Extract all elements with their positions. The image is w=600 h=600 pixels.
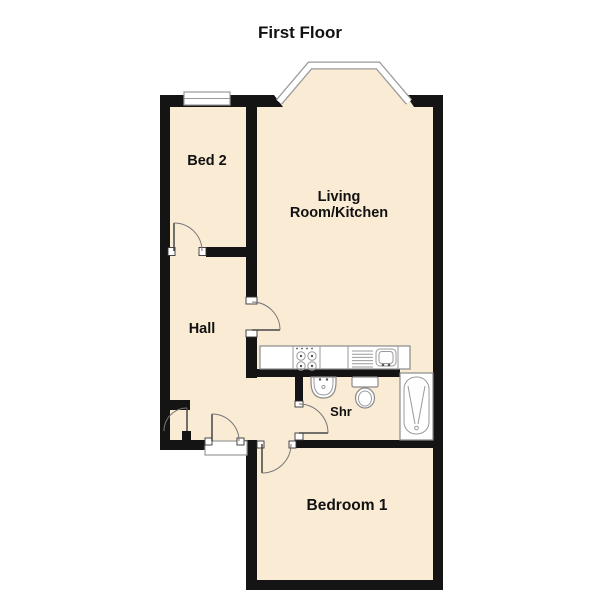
- entrance-door-post-left: [205, 438, 212, 445]
- basin-tap: [319, 378, 321, 380]
- bedroom1-door-post-right: [289, 441, 296, 448]
- living-door-post-top: [246, 297, 257, 304]
- bedroom1-floor-area: [251, 445, 438, 585]
- bed2-hall-wall: [206, 247, 247, 257]
- floor-plan-page: First Floor Bed 2 Living Room/Kitchen Ha…: [0, 0, 600, 600]
- room-label-hall: Hall: [189, 321, 216, 337]
- room-label-living-line1: Living: [318, 189, 361, 205]
- basin-tap: [326, 378, 328, 380]
- wash-basin-icon: [311, 377, 336, 398]
- entrance-door-post-right: [237, 438, 244, 445]
- bedroom1-left-wall: [246, 440, 257, 590]
- shower-door-post-bottom: [295, 433, 303, 440]
- shower-room-wall: [295, 377, 303, 401]
- bed2-window: [184, 92, 230, 105]
- sink-tap: [388, 364, 391, 367]
- room-label-bedroom1: Bedroom 1: [307, 497, 388, 514]
- sink-tap: [382, 364, 385, 367]
- floor-plan: First Floor Bed 2 Living Room/Kitchen Ha…: [0, 0, 600, 600]
- page-title: First Floor: [258, 23, 342, 42]
- kitchen-counter: [260, 346, 410, 370]
- bedroom1-bottom-wall: [246, 580, 443, 590]
- kitchen-wall: [246, 369, 400, 377]
- hall-bottom-wall: [160, 440, 207, 450]
- shower-tray-icon: [400, 373, 433, 440]
- right-outer-wall: [433, 95, 443, 590]
- bedroom1-top-wall-right: [295, 440, 433, 448]
- room-label-bed2: Bed 2: [187, 153, 227, 169]
- room-label-shower: Shr: [330, 404, 352, 419]
- hall-living-wall-upper: [246, 107, 257, 297]
- bedroom1-door-post-left: [257, 441, 264, 448]
- living-door-post-bottom: [246, 330, 257, 337]
- left-outer-wall: [160, 95, 170, 450]
- bed2-door-post-right: [199, 248, 206, 256]
- cupboard-pier: [182, 431, 191, 440]
- room-label-living-line2: Room/Kitchen: [290, 205, 388, 221]
- toilet-cistern: [352, 377, 378, 387]
